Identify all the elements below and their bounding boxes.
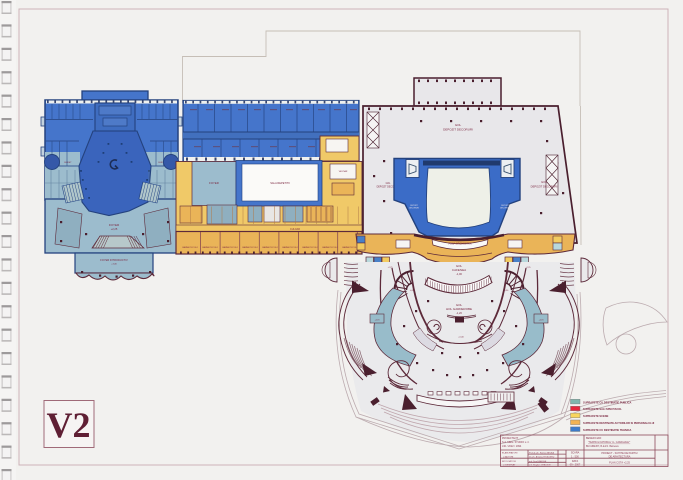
svg-text:FOYER: FOYER [209,181,219,185]
svg-text:SCARA: SCARA [571,452,580,455]
svg-text:GOL: GOL [455,123,462,127]
svg-text:+0,00: +0,00 [458,337,464,339]
svg-text:V2: V2 [47,405,91,445]
svg-text:1 : 500: 1 : 500 [571,455,579,458]
svg-text:CABINE PICCOLO: CABINE PICCOLO [242,246,259,249]
svg-text:+4,70: +4,70 [538,320,544,322]
svg-text:Prof.dr.arh. Romeo BELEA: Prof.dr.arh. Romeo BELEA [529,452,554,455]
svg-text:-1,00: -1,00 [456,272,462,276]
svg-text:SUPRAFETE CU DESTINATIE TEHNIC: SUPRAFETE CU DESTINATIE TEHNICA [583,428,631,432]
svg-text:09 - 2007: 09 - 2007 [570,464,581,467]
svg-text:SUPRAFETE SALI SPECTACOL: SUPRAFETE SALI SPECTACOL [583,407,622,411]
svg-text:+3,06: +3,06 [111,264,117,266]
svg-text:si DESENAT: si DESENAT [503,464,516,467]
svg-text:J40 / 2022 / 1994: J40 / 2022 / 1994 [502,445,522,448]
svg-text:DECORURI: DECORURI [500,208,510,210]
svg-text:DEPOZIT DECORURI: DEPOZIT DECORURI [531,185,558,189]
svg-text:PLAN COTA +2,25: PLAN COTA +2,25 [609,462,630,465]
svg-text:CABINE PICCOLO: CABINE PICCOLO [262,246,279,249]
svg-text:-1,20: -1,20 [456,311,462,315]
svg-text:BUFET: BUFET [64,162,72,164]
svg-text:+4,70: +4,70 [374,320,380,322]
svg-text:DATA: DATA [572,460,579,463]
svg-text:S.A. MEG- STUDIO s.r.l.: S.A. MEG- STUDIO s.r.l. [502,441,530,444]
svg-text:"TEATRUL NATIONAL 'I.L. CARAGI: "TEATRUL NATIONAL 'I.L. CARAGIALE'" [588,441,630,444]
svg-text:CULOAR: CULOAR [290,228,300,231]
svg-text:CABINE PICCOLO: CABINE PICCOLO [302,246,319,249]
svg-text:HOL GARDEROBE: HOL GARDEROBE [446,307,472,311]
svg-text:CABINE PICCOLO: CABINE PICCOLO [342,246,359,249]
svg-text:BENEFICIAR:: BENEFICIAR: [586,437,602,440]
svg-text:INTOCMITOR: INTOCMITOR [502,461,516,463]
svg-text:CABINE PICCOLO: CABINE PICCOLO [182,246,199,249]
svg-text:arh. Bogdan CRACIUN: arh. Bogdan CRACIUN [529,464,551,467]
svg-text:ELABORATORI: ELABORATORI [502,452,518,455]
svg-text:SALA REPETITII: SALA REPETITII [270,181,290,185]
svg-text:CABINE PICCOLO: CABINE PICCOLO [202,246,219,249]
svg-text:Dr.arh. Antonia TEODORIU: Dr.arh. Antonia TEODORIU [529,455,555,458]
svg-text:DE ARHITECTURA: DE ARHITECTURA [609,456,631,459]
svg-text:FOSA ORCHESTRA: FOSA ORCHESTRA [448,243,471,246]
svg-text:DEPOZIT DECORURI: DEPOZIT DECORURI [443,128,473,132]
svg-text:CABINE PICCOLO: CABINE PICCOLO [282,246,299,249]
svg-text:PROIECT - SCHITE DE PARTIU: PROIECT - SCHITE DE PARTIU [601,452,637,455]
svg-text:CAFENEA: CAFENEA [452,268,466,272]
svg-text:+2,25: +2,25 [387,267,393,269]
svg-text:FOYER INTRODUCTIV: FOYER INTRODUCTIV [100,258,128,262]
svg-text:SUPRAFETE SCENE: SUPRAFETE SCENE [583,414,609,418]
svg-text:FOYER: FOYER [109,223,120,227]
svg-text:BUCURESTI, B-dul N. Balcescu: BUCURESTI, B-dul N. Balcescu [586,446,620,448]
svg-text:SUPRAFETE DESTINATE ACTORILOR: SUPRAFETE DESTINATE ACTORILOR SI PERSONA… [583,421,655,425]
svg-text:arh. Dan ENACHE: arh. Dan ENACHE [529,460,547,463]
svg-text:GOL: GOL [541,180,547,184]
svg-text:GOL: GOL [386,183,392,185]
svg-text:DECORURI: DECORURI [409,208,419,210]
svg-text:+2,25: +2,25 [525,267,531,269]
svg-text:CABINE PICCOLO: CABINE PICCOLO [222,246,239,249]
svg-text:PROIECTANT:: PROIECTANT: [502,437,519,440]
svg-text:si AUTORI: si AUTORI [503,455,514,458]
svg-text:CABINE PICCOLO: CABINE PICCOLO [322,246,339,249]
svg-text:VESTIAR: VESTIAR [339,170,348,173]
svg-text:SUPRAFETE CU DESTINATIE PUBLIC: SUPRAFETE CU DESTINATIE PUBLICA [583,400,631,404]
svg-text:+2,25: +2,25 [111,227,118,231]
